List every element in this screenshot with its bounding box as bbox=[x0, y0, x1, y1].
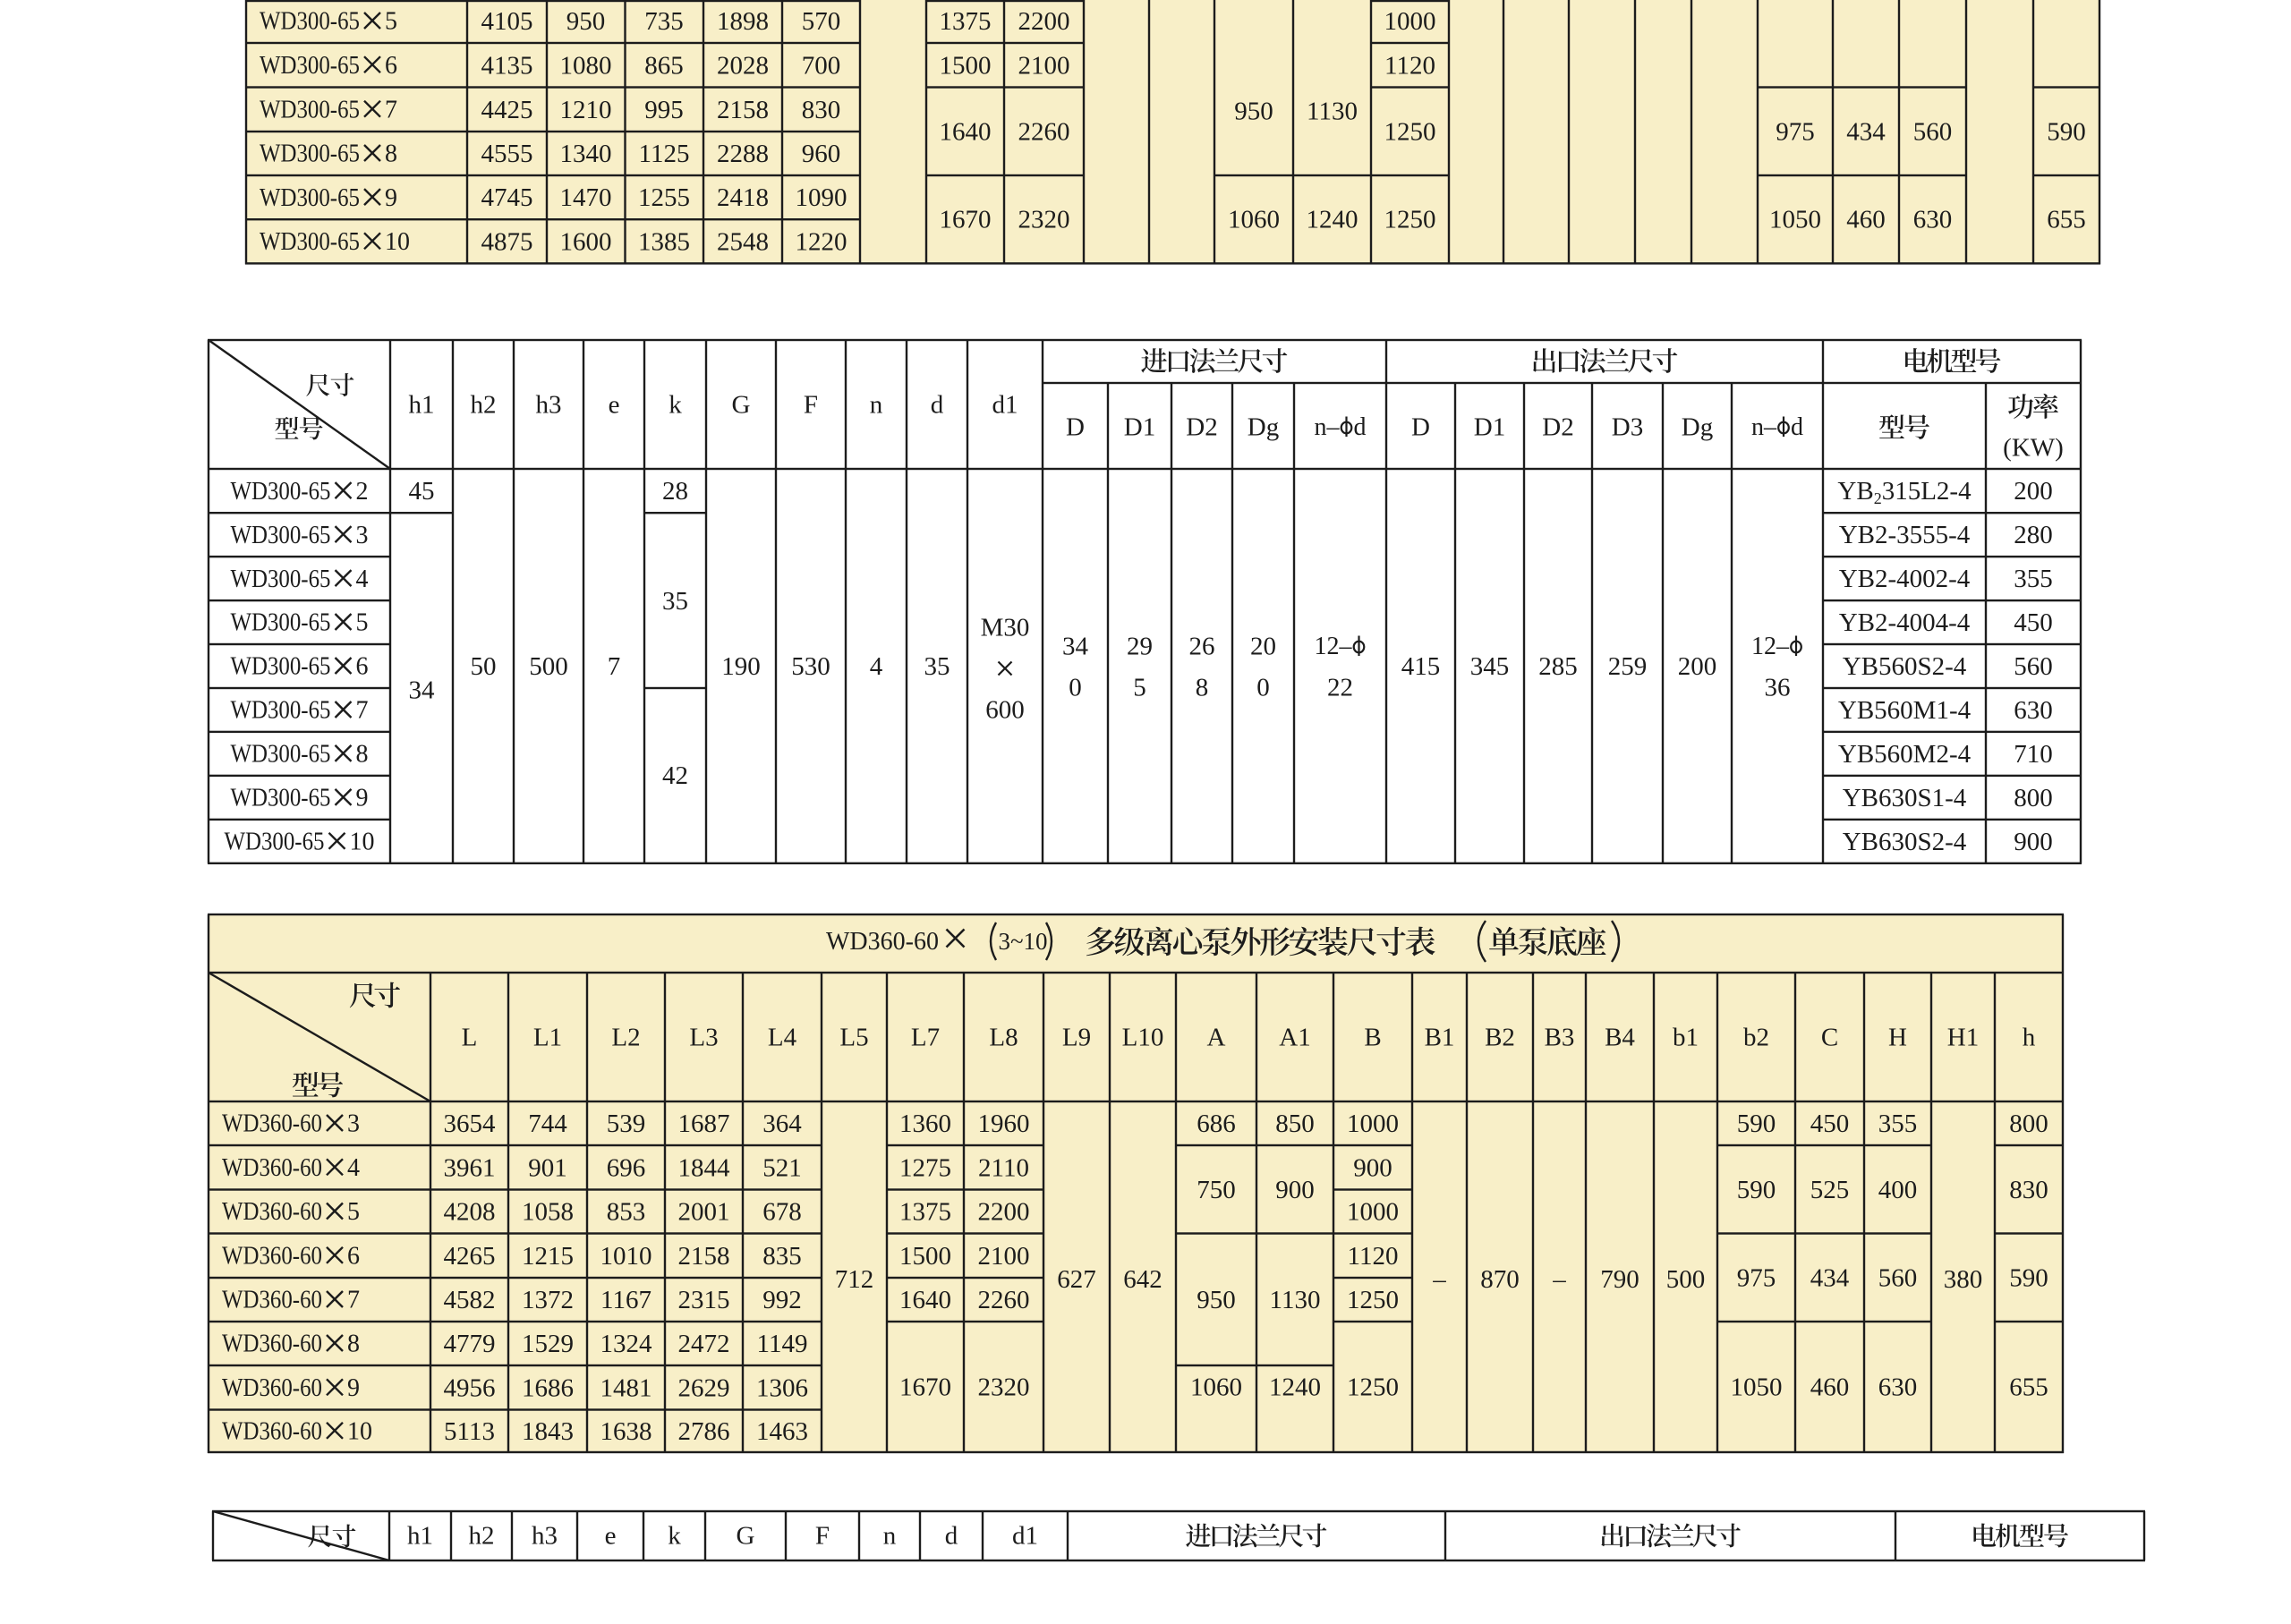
svg-text:H: H bbox=[1888, 1024, 1907, 1052]
svg-text:1090: 1090 bbox=[796, 183, 847, 212]
svg-text:YB560S2-4: YB560S2-4 bbox=[1843, 652, 1967, 681]
svg-text:696: 696 bbox=[607, 1153, 646, 1182]
svg-text:5: 5 bbox=[356, 609, 369, 637]
svg-text:4956: 4956 bbox=[444, 1373, 496, 1402]
svg-text:h3: h3 bbox=[536, 391, 562, 420]
svg-text:L8: L8 bbox=[989, 1024, 1018, 1052]
svg-text:1360: 1360 bbox=[899, 1110, 951, 1138]
svg-text:460: 460 bbox=[1810, 1373, 1850, 1402]
svg-text:4875: 4875 bbox=[481, 227, 533, 256]
svg-text:1481: 1481 bbox=[600, 1373, 652, 1402]
svg-text:WD300-65: WD300-65 bbox=[260, 228, 360, 256]
svg-text:29: 29 bbox=[1127, 633, 1153, 661]
svg-text:539: 539 bbox=[607, 1110, 646, 1138]
svg-text:2548: 2548 bbox=[717, 227, 769, 256]
svg-text:1000: 1000 bbox=[1347, 1198, 1399, 1227]
svg-text:WD300-65: WD300-65 bbox=[260, 8, 360, 36]
svg-text:WD300-65: WD300-65 bbox=[231, 785, 331, 812]
svg-text:h2: h2 bbox=[471, 391, 497, 420]
svg-text:1638: 1638 bbox=[600, 1417, 652, 1446]
svg-text:D2: D2 bbox=[1186, 413, 1217, 442]
svg-text:1687: 1687 bbox=[678, 1110, 730, 1138]
svg-text:2260: 2260 bbox=[1018, 117, 1070, 146]
svg-text:WD360-60: WD360-60 bbox=[222, 1287, 322, 1314]
svg-text:WD360-60: WD360-60 bbox=[222, 1154, 322, 1182]
svg-text:1250: 1250 bbox=[1347, 1286, 1399, 1314]
svg-text:12–: 12– bbox=[1751, 633, 1790, 660]
svg-text:WD360-60: WD360-60 bbox=[222, 1418, 322, 1446]
svg-text:590: 590 bbox=[2047, 117, 2086, 146]
svg-text:744: 744 bbox=[528, 1110, 567, 1138]
svg-text:5: 5 bbox=[347, 1198, 360, 1226]
svg-text:L4: L4 bbox=[768, 1024, 797, 1052]
svg-text:710: 710 bbox=[2014, 740, 2053, 769]
svg-text:3: 3 bbox=[356, 522, 369, 549]
svg-text:364: 364 bbox=[762, 1110, 802, 1138]
svg-text:259: 259 bbox=[1608, 652, 1648, 681]
svg-text:950: 950 bbox=[1234, 98, 1273, 126]
svg-text:WD300-65: WD300-65 bbox=[231, 741, 331, 769]
svg-text:1600: 1600 bbox=[560, 227, 612, 256]
svg-text:2786: 2786 bbox=[678, 1417, 730, 1446]
svg-text:6: 6 bbox=[356, 653, 369, 681]
svg-text:L10: L10 bbox=[1122, 1024, 1164, 1052]
svg-text:800: 800 bbox=[2014, 784, 2053, 812]
svg-text:4208: 4208 bbox=[444, 1198, 496, 1227]
svg-text:4135: 4135 bbox=[481, 51, 533, 80]
svg-text:4: 4 bbox=[347, 1154, 360, 1182]
svg-text:1255: 1255 bbox=[638, 183, 690, 212]
svg-text:600: 600 bbox=[985, 696, 1025, 725]
svg-text:L7: L7 bbox=[911, 1024, 940, 1052]
svg-text:6: 6 bbox=[385, 52, 397, 80]
svg-text:1000: 1000 bbox=[1384, 7, 1436, 36]
svg-text:4779: 4779 bbox=[444, 1330, 496, 1358]
svg-text:A: A bbox=[1207, 1024, 1226, 1052]
svg-text:L1: L1 bbox=[533, 1024, 562, 1052]
svg-text:865: 865 bbox=[644, 51, 684, 80]
svg-text:1215: 1215 bbox=[522, 1242, 574, 1271]
svg-text:355: 355 bbox=[1878, 1110, 1918, 1138]
svg-text:415: 415 bbox=[1401, 652, 1441, 681]
svg-text:2158: 2158 bbox=[678, 1242, 730, 1271]
svg-text:YB630S2-4: YB630S2-4 bbox=[1843, 828, 1967, 856]
svg-text:35: 35 bbox=[662, 587, 688, 616]
svg-text:YB2-4004-4: YB2-4004-4 bbox=[1839, 608, 1971, 637]
svg-text:1372: 1372 bbox=[522, 1286, 574, 1314]
svg-text:345: 345 bbox=[1470, 652, 1510, 681]
svg-text:1385: 1385 bbox=[638, 227, 690, 256]
svg-text:560: 560 bbox=[1878, 1263, 1918, 1292]
svg-text:570: 570 bbox=[802, 7, 841, 36]
svg-text:B2: B2 bbox=[1485, 1024, 1515, 1052]
svg-text:n: n bbox=[883, 1522, 897, 1551]
svg-text:d1: d1 bbox=[992, 391, 1018, 420]
svg-text:4555: 4555 bbox=[481, 140, 533, 168]
svg-text:1058: 1058 bbox=[522, 1198, 574, 1227]
svg-text:2158: 2158 bbox=[717, 96, 769, 124]
svg-text:Dg: Dg bbox=[1682, 413, 1713, 442]
svg-text:1324: 1324 bbox=[600, 1330, 653, 1358]
svg-text:e: e bbox=[609, 391, 620, 420]
svg-text:12–: 12– bbox=[1315, 633, 1353, 660]
svg-text:WD360-60: WD360-60 bbox=[222, 1110, 322, 1138]
svg-text:d1: d1 bbox=[1012, 1522, 1038, 1551]
svg-text:853: 853 bbox=[607, 1198, 646, 1227]
svg-text:1120: 1120 bbox=[1384, 51, 1435, 80]
svg-text:4265: 4265 bbox=[444, 1242, 496, 1271]
svg-text:YB2-4002-4: YB2-4002-4 bbox=[1839, 565, 1971, 593]
svg-text:642: 642 bbox=[1123, 1265, 1163, 1294]
svg-text:L3: L3 bbox=[689, 1024, 718, 1052]
svg-text:9: 9 bbox=[385, 184, 397, 212]
svg-text:1340: 1340 bbox=[560, 140, 612, 168]
svg-text:k: k bbox=[669, 391, 682, 420]
svg-text:D1: D1 bbox=[1474, 413, 1505, 442]
svg-text:d: d bbox=[931, 391, 944, 420]
svg-text:1010: 1010 bbox=[600, 1242, 652, 1271]
svg-text:n: n bbox=[870, 391, 883, 420]
svg-text:WD360-60: WD360-60 bbox=[222, 1198, 322, 1226]
svg-text:WD300-65: WD300-65 bbox=[231, 522, 331, 549]
svg-text:2100: 2100 bbox=[1018, 51, 1070, 80]
svg-text:2200: 2200 bbox=[1018, 7, 1070, 36]
svg-text:900: 900 bbox=[1353, 1153, 1392, 1182]
svg-text:200: 200 bbox=[2014, 477, 2053, 506]
svg-text:590: 590 bbox=[1737, 1176, 1776, 1204]
svg-text:34: 34 bbox=[1062, 633, 1089, 661]
svg-text:790: 790 bbox=[1600, 1265, 1639, 1294]
svg-text:7: 7 bbox=[356, 697, 369, 725]
svg-text:1470: 1470 bbox=[560, 183, 612, 212]
svg-text:1250: 1250 bbox=[1384, 206, 1436, 234]
svg-text:460: 460 bbox=[1846, 206, 1886, 234]
svg-text:YB560M2-4: YB560M2-4 bbox=[1838, 740, 1972, 769]
svg-text:D: D bbox=[1411, 413, 1430, 442]
svg-text:590: 590 bbox=[1737, 1110, 1776, 1138]
svg-text:2028: 2028 bbox=[717, 51, 769, 80]
svg-text:2472: 2472 bbox=[678, 1330, 730, 1358]
svg-text:d: d bbox=[945, 1522, 958, 1551]
svg-text:1120: 1120 bbox=[1348, 1242, 1399, 1271]
svg-text:434: 434 bbox=[1846, 117, 1886, 146]
svg-text:9: 9 bbox=[347, 1374, 360, 1402]
svg-text:190: 190 bbox=[721, 652, 761, 681]
svg-text:1375: 1375 bbox=[899, 1198, 951, 1227]
svg-text:h3: h3 bbox=[532, 1522, 558, 1551]
svg-text:950: 950 bbox=[1197, 1286, 1236, 1314]
svg-text:D1: D1 bbox=[1124, 413, 1155, 442]
svg-text:2418: 2418 bbox=[717, 183, 769, 212]
svg-text:627: 627 bbox=[1057, 1265, 1096, 1294]
svg-text:2629: 2629 bbox=[678, 1373, 730, 1402]
svg-text:560: 560 bbox=[2014, 652, 2053, 681]
svg-text:0: 0 bbox=[1256, 674, 1270, 702]
svg-text:975: 975 bbox=[1776, 117, 1815, 146]
svg-text:3~10: 3~10 bbox=[998, 928, 1047, 955]
svg-text:H1: H1 bbox=[1947, 1024, 1979, 1052]
svg-text:200: 200 bbox=[1678, 652, 1717, 681]
svg-text:1130: 1130 bbox=[1270, 1286, 1321, 1314]
svg-text:735: 735 bbox=[644, 7, 684, 36]
svg-text:WD360-60: WD360-60 bbox=[222, 1331, 322, 1358]
svg-text:1686: 1686 bbox=[522, 1373, 574, 1402]
svg-text:–: – bbox=[1432, 1265, 1446, 1294]
svg-text:1060: 1060 bbox=[1228, 206, 1280, 234]
svg-text:590: 590 bbox=[2009, 1263, 2048, 1292]
svg-text:YB630S1-4: YB630S1-4 bbox=[1843, 784, 1967, 812]
svg-text:b2: b2 bbox=[1743, 1024, 1769, 1052]
svg-text:2200: 2200 bbox=[978, 1198, 1030, 1227]
svg-text:630: 630 bbox=[1878, 1373, 1918, 1402]
svg-text:1670: 1670 bbox=[940, 206, 992, 234]
svg-text:22: 22 bbox=[1327, 674, 1353, 702]
svg-text:3: 3 bbox=[347, 1110, 360, 1138]
svg-text:8: 8 bbox=[385, 140, 397, 168]
svg-text:M30: M30 bbox=[981, 614, 1030, 642]
svg-text:7: 7 bbox=[608, 652, 621, 681]
svg-text:450: 450 bbox=[2014, 608, 2053, 637]
svg-text:560: 560 bbox=[1913, 117, 1953, 146]
svg-text:3961: 3961 bbox=[444, 1153, 496, 1182]
svg-text:1210: 1210 bbox=[560, 96, 612, 124]
svg-text:L: L bbox=[462, 1024, 478, 1052]
svg-text:285: 285 bbox=[1538, 652, 1578, 681]
svg-text:850: 850 bbox=[1275, 1110, 1315, 1138]
svg-text:8: 8 bbox=[347, 1331, 360, 1358]
svg-text:1149: 1149 bbox=[757, 1330, 808, 1358]
svg-text:1060: 1060 bbox=[1190, 1373, 1242, 1402]
svg-text:901: 901 bbox=[528, 1153, 567, 1182]
svg-text:8: 8 bbox=[1196, 674, 1209, 702]
svg-text:B1: B1 bbox=[1425, 1024, 1455, 1052]
svg-text:n–: n– bbox=[1751, 413, 1777, 441]
svg-text:830: 830 bbox=[2009, 1176, 2048, 1204]
svg-text:2320: 2320 bbox=[978, 1373, 1030, 1402]
svg-text:Dg: Dg bbox=[1248, 413, 1279, 442]
svg-text:20: 20 bbox=[1250, 633, 1276, 661]
svg-text:WD300-65: WD300-65 bbox=[260, 184, 360, 212]
svg-text:4425: 4425 bbox=[481, 96, 533, 124]
svg-text:4: 4 bbox=[356, 565, 369, 593]
svg-text:b1: b1 bbox=[1673, 1024, 1699, 1052]
svg-text:992: 992 bbox=[762, 1286, 802, 1314]
svg-text:530: 530 bbox=[791, 652, 830, 681]
svg-text:678: 678 bbox=[762, 1198, 802, 1227]
svg-text:655: 655 bbox=[2047, 206, 2086, 234]
svg-text:1670: 1670 bbox=[899, 1373, 951, 1402]
svg-text:e: e bbox=[605, 1522, 617, 1551]
svg-text:686: 686 bbox=[1197, 1110, 1236, 1138]
svg-text:G: G bbox=[737, 1522, 755, 1551]
svg-text:450: 450 bbox=[1810, 1110, 1850, 1138]
svg-text:4582: 4582 bbox=[444, 1286, 496, 1314]
svg-text:5: 5 bbox=[385, 8, 397, 36]
svg-text:WD300-65: WD300-65 bbox=[225, 829, 325, 856]
svg-text:d: d bbox=[1791, 413, 1803, 441]
svg-text:835: 835 bbox=[762, 1242, 802, 1271]
svg-text:355: 355 bbox=[2014, 565, 2053, 593]
svg-text:(KW): (KW) bbox=[2003, 434, 2064, 463]
svg-text:10: 10 bbox=[385, 228, 410, 256]
svg-text:975: 975 bbox=[1737, 1263, 1776, 1292]
svg-text:WD300-65: WD300-65 bbox=[260, 96, 360, 123]
svg-text:2260: 2260 bbox=[978, 1286, 1030, 1314]
svg-text:50: 50 bbox=[471, 652, 497, 681]
svg-text:WD300-65: WD300-65 bbox=[231, 609, 331, 637]
svg-text:2: 2 bbox=[356, 478, 369, 506]
svg-text:F: F bbox=[804, 391, 818, 420]
svg-text:1306: 1306 bbox=[756, 1373, 808, 1402]
svg-text:500: 500 bbox=[529, 652, 568, 681]
svg-text:7: 7 bbox=[385, 96, 397, 123]
svg-text:10: 10 bbox=[350, 829, 375, 856]
svg-text:YB2-3555-4: YB2-3555-4 bbox=[1839, 521, 1971, 549]
svg-text:1080: 1080 bbox=[560, 51, 612, 80]
svg-text:WD300-65: WD300-65 bbox=[260, 52, 360, 80]
svg-text:k: k bbox=[668, 1522, 681, 1551]
svg-text:4105: 4105 bbox=[481, 7, 533, 36]
svg-text:7: 7 bbox=[347, 1287, 360, 1314]
svg-text:4: 4 bbox=[870, 652, 883, 681]
svg-text:800: 800 bbox=[2009, 1110, 2048, 1138]
svg-text:380: 380 bbox=[1944, 1265, 1983, 1294]
svg-text:1000: 1000 bbox=[1347, 1110, 1399, 1138]
svg-text:WD300-65: WD300-65 bbox=[231, 653, 331, 681]
svg-text:35: 35 bbox=[924, 652, 950, 681]
svg-text:34: 34 bbox=[409, 676, 436, 705]
svg-text:900: 900 bbox=[2014, 828, 2053, 856]
svg-text:WD300-65: WD300-65 bbox=[231, 478, 331, 506]
svg-text:1960: 1960 bbox=[978, 1110, 1030, 1138]
svg-text:h1: h1 bbox=[407, 1522, 433, 1551]
svg-text:h1: h1 bbox=[409, 391, 435, 420]
svg-text:8: 8 bbox=[356, 741, 369, 769]
svg-text:1844: 1844 bbox=[678, 1153, 731, 1182]
svg-text:4745: 4745 bbox=[481, 183, 533, 212]
svg-text:G: G bbox=[732, 391, 751, 420]
svg-text:280: 280 bbox=[2014, 521, 2053, 549]
svg-text:2110: 2110 bbox=[978, 1153, 1029, 1182]
svg-text:1640: 1640 bbox=[899, 1286, 951, 1314]
svg-text:1500: 1500 bbox=[940, 51, 992, 80]
svg-text:5113: 5113 bbox=[444, 1417, 495, 1446]
svg-text:1463: 1463 bbox=[756, 1417, 808, 1446]
svg-text:1130: 1130 bbox=[1307, 98, 1358, 126]
svg-text:700: 700 bbox=[802, 51, 841, 80]
svg-text:26: 26 bbox=[1189, 633, 1215, 661]
svg-text:45: 45 bbox=[409, 477, 435, 506]
svg-text:D3: D3 bbox=[1612, 413, 1643, 442]
svg-text:630: 630 bbox=[1913, 206, 1953, 234]
svg-text:A1: A1 bbox=[1279, 1024, 1310, 1052]
svg-text:712: 712 bbox=[835, 1265, 874, 1294]
svg-text:400: 400 bbox=[1878, 1176, 1918, 1204]
svg-text:n–: n– bbox=[1315, 413, 1341, 441]
svg-text:1240: 1240 bbox=[1307, 206, 1358, 234]
svg-text:1125: 1125 bbox=[639, 140, 690, 168]
svg-text:1240: 1240 bbox=[1269, 1373, 1321, 1402]
svg-text:WD360-60: WD360-60 bbox=[222, 1374, 322, 1402]
svg-text:L5: L5 bbox=[839, 1024, 868, 1052]
svg-text:9: 9 bbox=[356, 785, 369, 812]
svg-text:830: 830 bbox=[802, 96, 841, 124]
svg-text:L2: L2 bbox=[611, 1024, 640, 1052]
svg-text:1050: 1050 bbox=[1769, 206, 1821, 234]
svg-text:6: 6 bbox=[347, 1243, 360, 1271]
svg-text:36: 36 bbox=[1765, 674, 1791, 702]
svg-text:960: 960 bbox=[802, 140, 841, 168]
svg-text:500: 500 bbox=[1666, 1265, 1706, 1294]
svg-text:28: 28 bbox=[662, 477, 688, 506]
svg-text:1250: 1250 bbox=[1384, 117, 1436, 146]
svg-text:C: C bbox=[1821, 1024, 1838, 1052]
svg-text:YB2315L2-4: YB2315L2-4 bbox=[1837, 477, 1972, 507]
svg-text:L9: L9 bbox=[1062, 1024, 1091, 1052]
svg-text:630: 630 bbox=[2014, 696, 2053, 725]
svg-text:655: 655 bbox=[2009, 1373, 2048, 1402]
svg-text:750: 750 bbox=[1197, 1176, 1236, 1204]
svg-text:521: 521 bbox=[762, 1153, 802, 1182]
svg-text:0: 0 bbox=[1069, 674, 1082, 702]
svg-text:525: 525 bbox=[1810, 1176, 1850, 1204]
svg-text:950: 950 bbox=[566, 7, 606, 36]
svg-text:2001: 2001 bbox=[678, 1198, 730, 1227]
svg-text:d: d bbox=[1354, 413, 1367, 441]
svg-text:900: 900 bbox=[1275, 1176, 1315, 1204]
svg-text:1050: 1050 bbox=[1731, 1373, 1783, 1402]
svg-text:WD360-60: WD360-60 bbox=[826, 928, 939, 956]
svg-text:1250: 1250 bbox=[1347, 1373, 1399, 1402]
svg-text:h: h bbox=[2023, 1024, 2036, 1052]
svg-text:2288: 2288 bbox=[717, 140, 769, 168]
svg-text:1529: 1529 bbox=[522, 1330, 574, 1358]
svg-text:B3: B3 bbox=[1545, 1024, 1575, 1052]
svg-text:B4: B4 bbox=[1605, 1024, 1635, 1052]
svg-text:870: 870 bbox=[1480, 1265, 1520, 1294]
svg-text:D: D bbox=[1066, 413, 1085, 442]
svg-text:F: F bbox=[815, 1522, 830, 1551]
svg-text:B: B bbox=[1364, 1024, 1381, 1052]
svg-text:1220: 1220 bbox=[796, 227, 847, 256]
svg-text:WD360-60: WD360-60 bbox=[222, 1243, 322, 1271]
svg-text:1898: 1898 bbox=[717, 7, 769, 36]
svg-text:1167: 1167 bbox=[600, 1286, 652, 1314]
svg-text:2320: 2320 bbox=[1018, 206, 1070, 234]
svg-text:10: 10 bbox=[347, 1418, 372, 1446]
svg-text:434: 434 bbox=[1810, 1263, 1850, 1292]
svg-text:42: 42 bbox=[662, 761, 688, 790]
svg-text:D2: D2 bbox=[1542, 413, 1573, 442]
svg-text:WD300-65: WD300-65 bbox=[231, 565, 331, 593]
svg-text:2100: 2100 bbox=[978, 1242, 1030, 1271]
svg-text:995: 995 bbox=[644, 96, 684, 124]
svg-text:–: – bbox=[1552, 1265, 1566, 1294]
svg-text:1640: 1640 bbox=[940, 117, 992, 146]
svg-text:YB560M1-4: YB560M1-4 bbox=[1838, 696, 1972, 725]
svg-text:h2: h2 bbox=[469, 1522, 495, 1551]
svg-text:WD300-65: WD300-65 bbox=[231, 697, 331, 725]
svg-text:WD300-65: WD300-65 bbox=[260, 140, 360, 168]
svg-text:1275: 1275 bbox=[899, 1153, 951, 1182]
svg-text:1500: 1500 bbox=[899, 1242, 951, 1271]
svg-text:3654: 3654 bbox=[444, 1110, 497, 1138]
svg-text:1843: 1843 bbox=[522, 1417, 574, 1446]
svg-text:2315: 2315 bbox=[678, 1286, 730, 1314]
svg-text:1375: 1375 bbox=[940, 7, 992, 36]
svg-text:5: 5 bbox=[1133, 674, 1146, 702]
